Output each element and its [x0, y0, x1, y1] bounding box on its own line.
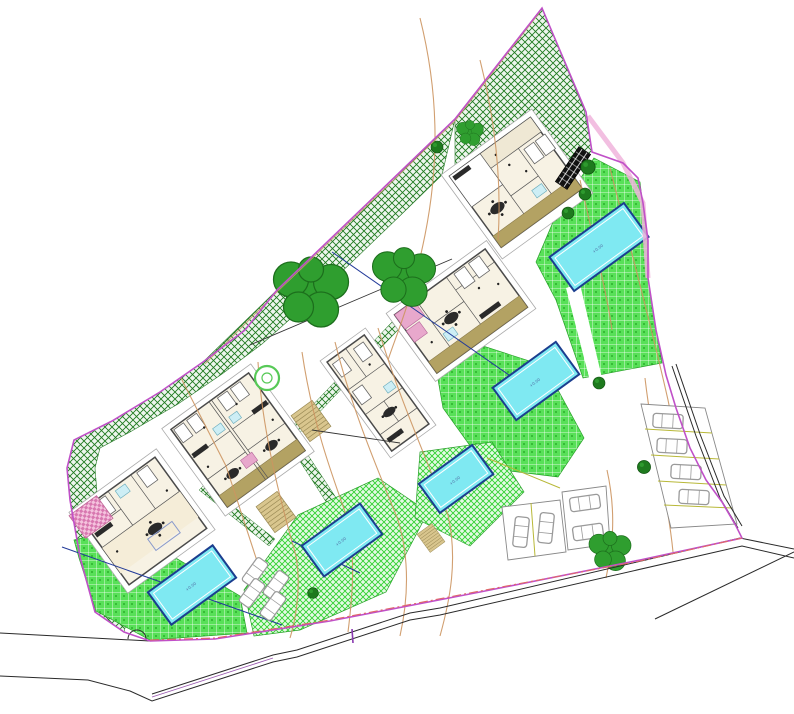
ring-tree-icon	[255, 366, 279, 390]
site-plan-drawing: +0.00 +0.00 +0.00 +0.00 +0.00	[0, 0, 794, 714]
site-plan-canvas: +0.00 +0.00 +0.00 +0.00 +0.00	[0, 0, 794, 714]
small-tree-icon	[308, 588, 319, 599]
small-tree-icon	[562, 207, 574, 219]
small-tree-icon	[593, 377, 605, 389]
small-tree-icon	[579, 188, 591, 200]
small-tree-icon	[581, 160, 595, 174]
small-tree-icon	[637, 460, 650, 473]
large-tree-icon	[373, 248, 436, 307]
parking-east	[641, 404, 737, 528]
boundary-marker	[352, 629, 353, 643]
